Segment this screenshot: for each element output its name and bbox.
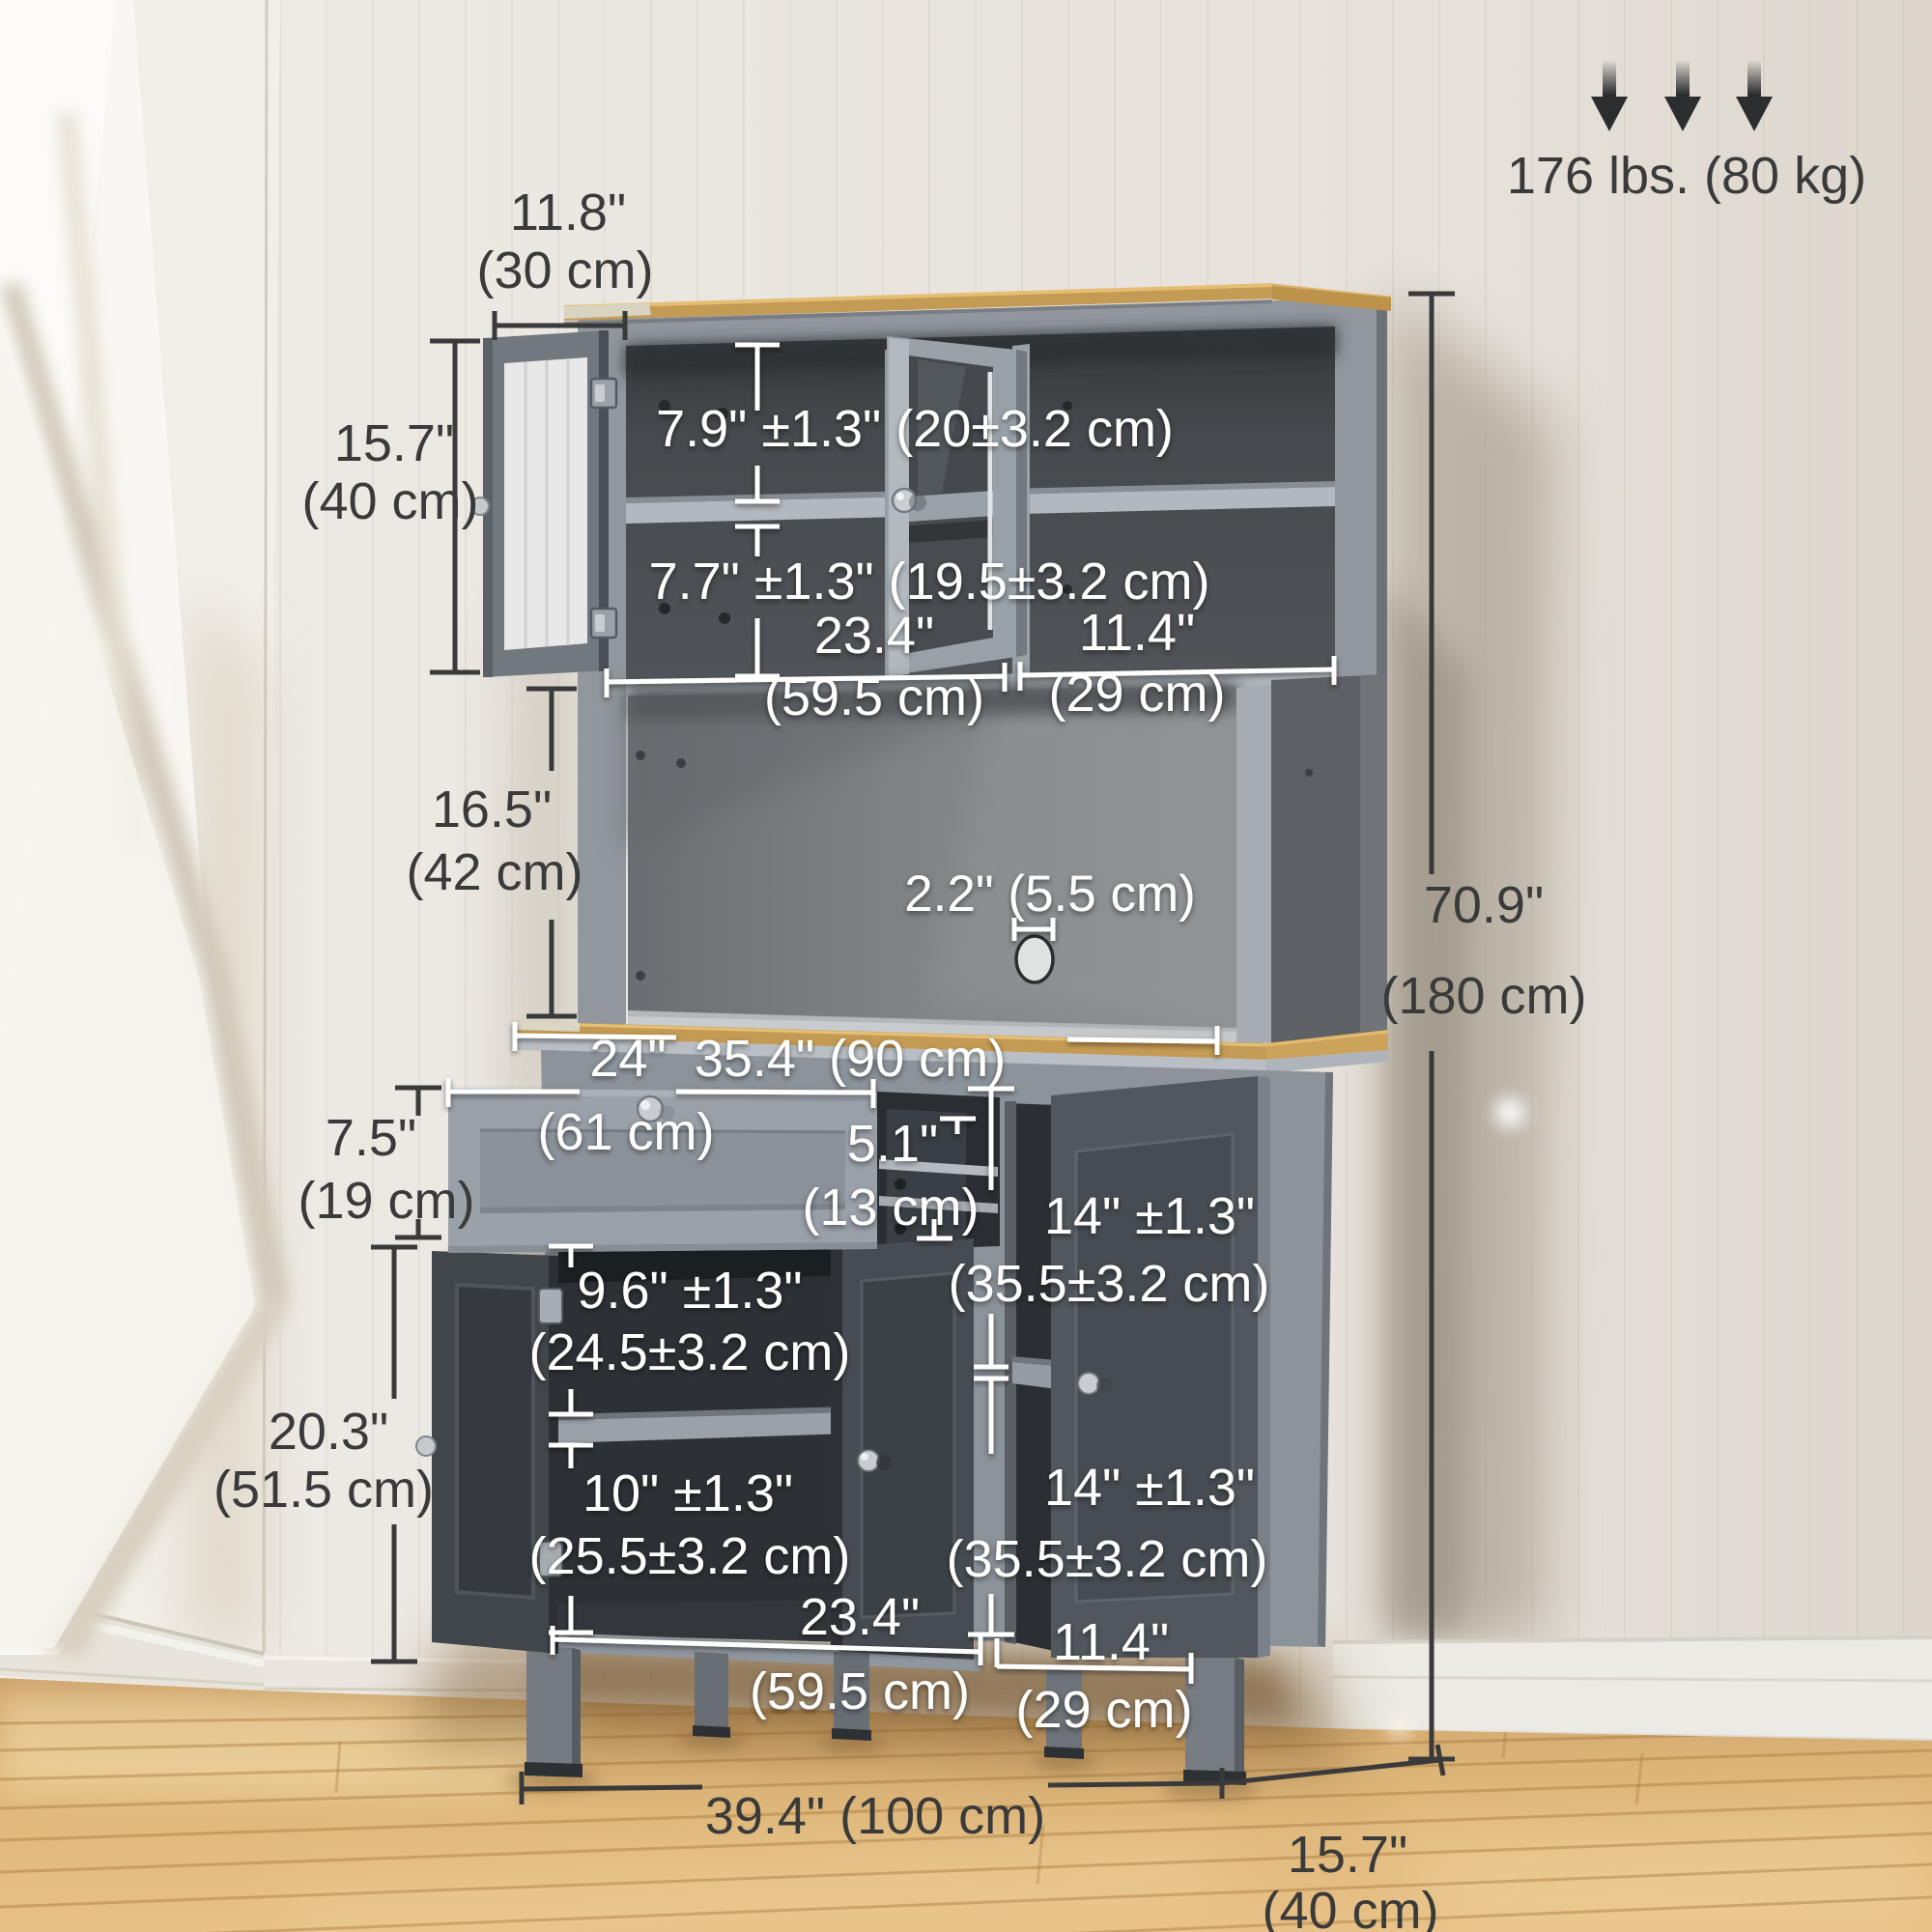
svg-text:14" ±1.3": 14" ±1.3" [1044, 1459, 1255, 1517]
svg-text:7.5": 7.5" [326, 1109, 416, 1167]
svg-text:(19 cm): (19 cm) [298, 1172, 474, 1230]
svg-text:15.7": 15.7" [1288, 1826, 1407, 1884]
svg-text:11.8": 11.8" [510, 184, 626, 241]
svg-text:(59.5 cm): (59.5 cm) [750, 1662, 970, 1720]
svg-text:23.4": 23.4" [800, 1588, 920, 1646]
svg-text:(35.5±3.2 cm): (35.5±3.2 cm) [949, 1255, 1270, 1313]
svg-text:(51.5 cm): (51.5 cm) [213, 1461, 434, 1519]
svg-text:5.1": 5.1" [847, 1115, 938, 1173]
svg-text:11.4": 11.4" [1053, 1613, 1169, 1671]
svg-text:(25.5±3.2 cm): (25.5±3.2 cm) [529, 1527, 851, 1585]
svg-text:16.5": 16.5" [432, 781, 552, 838]
svg-text:9.6" ±1.3": 9.6" ±1.3" [577, 1262, 802, 1320]
svg-text:14" ±1.3": 14" ±1.3" [1044, 1187, 1255, 1245]
svg-text:7.9" ±1.3" (20±3.2 cm): 7.9" ±1.3" (20±3.2 cm) [656, 400, 1174, 458]
svg-text:70.9": 70.9" [1424, 876, 1544, 934]
svg-text:(30 cm): (30 cm) [476, 241, 653, 299]
svg-text:(35.5±3.2 cm): (35.5±3.2 cm) [947, 1530, 1268, 1588]
svg-text:10" ±1.3": 10" ±1.3" [582, 1464, 793, 1522]
svg-text:39.4" (100 cm): 39.4" (100 cm) [705, 1787, 1045, 1845]
svg-text:(40 cm): (40 cm) [301, 472, 478, 530]
svg-text:(29 cm): (29 cm) [1015, 1681, 1192, 1739]
svg-text:(61 cm): (61 cm) [537, 1103, 714, 1161]
svg-text:24": 24" [589, 1030, 666, 1088]
svg-text:35.4" (90 cm): 35.4" (90 cm) [695, 1030, 1006, 1088]
svg-text:7.7" ±1.3" (19.5±3.2 cm): 7.7" ±1.3" (19.5±3.2 cm) [649, 553, 1210, 611]
svg-text:(40 cm): (40 cm) [1262, 1882, 1438, 1932]
svg-text:11.4": 11.4" [1079, 604, 1195, 662]
svg-text:(42 cm): (42 cm) [406, 843, 582, 901]
svg-text:15.7": 15.7" [334, 414, 454, 472]
svg-text:2.2" (5.5 cm): 2.2" (5.5 cm) [904, 866, 1196, 923]
svg-text:(180 cm): (180 cm) [1380, 967, 1586, 1025]
svg-text:176 lbs. (80 kg): 176 lbs. (80 kg) [1507, 147, 1866, 205]
svg-text:(24.5±3.2 cm): (24.5±3.2 cm) [529, 1323, 851, 1381]
svg-text:23.4": 23.4" [814, 607, 934, 665]
svg-text:20.3": 20.3" [269, 1403, 388, 1461]
svg-text:(13 cm): (13 cm) [802, 1179, 979, 1236]
